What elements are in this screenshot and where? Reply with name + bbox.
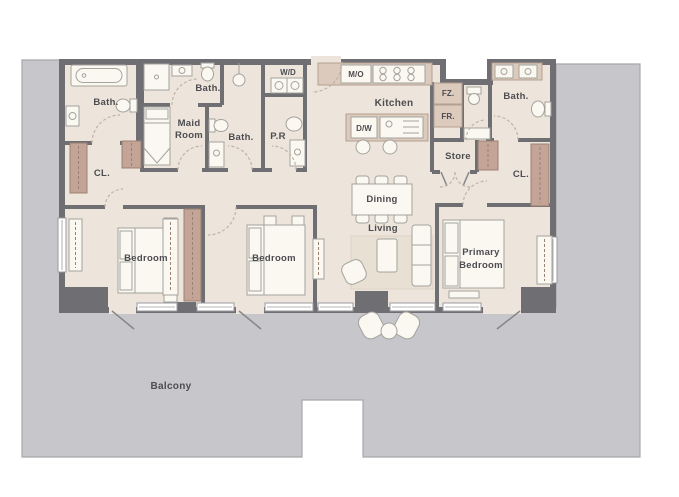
vanity-counter [464,128,490,139]
toilet-icon [209,119,228,132]
powder-room-label: P.R [270,131,286,142]
bedroom-left-label: Bedroom [124,253,168,264]
living-label: Living [368,223,398,234]
appliance-column: FZ. FR. [434,83,462,127]
closet-left-label: CL. [94,168,110,179]
bath-primary-label: Bath. [503,91,528,102]
wardrobe-icon [69,219,82,271]
wardrobe-icon [313,239,324,279]
balcony-label: Balcony [150,381,191,392]
toilet-icon [532,101,552,117]
washer-dryer-label: W/D [280,68,296,77]
fridge-label: FR. [441,112,454,121]
nightstand-icon [264,216,276,225]
toilet-icon [116,99,137,112]
dining-label: Dining [366,194,397,205]
floor-plan-svg: Bath. CL. Bath. Maid Room [0,0,679,497]
dishwasher-label: D/W [356,124,372,133]
vanity-sink-icon [209,142,224,167]
sink-icon [286,117,302,131]
outdoor-table-icon [381,323,397,339]
shower-icon [144,64,169,90]
maid-bath-label: Bath. [195,83,220,94]
freezer-label: FZ. [442,89,454,98]
hob-icon [373,65,425,83]
vanity-sink-icon [290,140,305,166]
sink-icon [172,65,192,76]
bedroom-middle-label: Bedroom [252,253,296,264]
wall-corner-block [62,287,108,310]
bath-top-left-label: Bath. [93,97,118,108]
bench-icon [449,291,479,298]
primary-bedroom-label-2: Bedroom [459,260,503,271]
washer-dryer-icon [271,78,303,93]
bath-middle-label: Bath. [228,132,253,143]
maid-room-label-2: Room [175,130,203,141]
toilet-icon [201,63,214,81]
balcony-door-gap [483,303,521,314]
nightstand-icon [292,216,304,225]
primary-bedroom-label-1: Primary [462,247,500,258]
sink-icon [66,106,79,126]
wardrobe-icon [537,236,552,284]
microwave-oven-label: M/O [348,70,363,79]
wall-corner-block [521,287,556,312]
wall-pier [177,302,196,313]
closet-right-label: CL. [513,169,529,180]
maid-room-label-1: Maid [178,118,201,129]
sofa-icon [412,225,431,286]
pedestal-sink-icon [467,87,481,105]
island-sink-icon [380,117,423,138]
room-dining: Dining [352,176,412,223]
store-label: Store [445,151,471,162]
bathtub-icon [71,65,127,86]
floor-plan-canvas: Bath. CL. Bath. Maid Room [0,0,679,497]
kitchen-label: Kitchen [375,98,414,109]
coffee-table-icon [377,239,397,272]
bed-icon [144,107,170,165]
wall-pier [355,291,388,308]
